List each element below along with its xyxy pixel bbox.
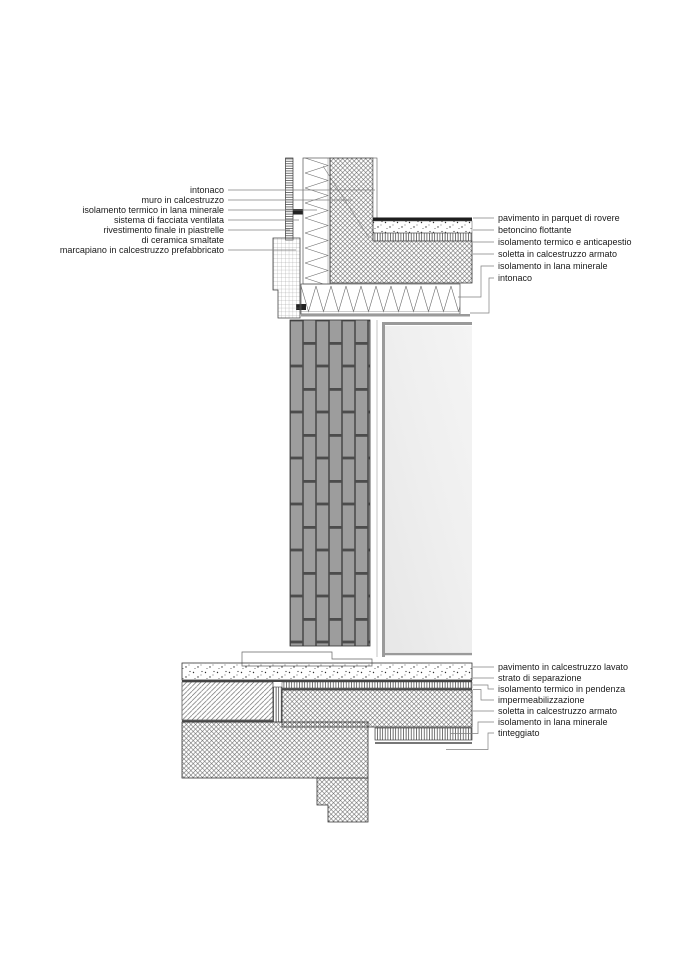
parquet-layer <box>373 218 472 222</box>
label-parquet: pavimento in parquet di rovere <box>498 213 620 223</box>
screed-layer <box>373 221 472 233</box>
plaster-strip-upper <box>373 158 377 218</box>
acoustic-insulation-layer <box>373 233 472 241</box>
waterproofing-upturn <box>273 687 282 722</box>
ceiling-plaster-line-upper <box>301 314 470 317</box>
ceiling-insulation-band-lower <box>375 728 472 740</box>
lower-slab-concrete <box>282 690 472 727</box>
label-intonaco-right: intonaco <box>498 273 532 283</box>
label-muro: muro in calcestruzzo <box>141 195 224 205</box>
facade-and-window <box>242 320 472 666</box>
label-intonaco-left: intonaco <box>190 185 224 195</box>
labels-right-bottom: pavimento in calcestruzzo lavato strato … <box>498 662 628 738</box>
brick-cladding-elevation <box>290 320 370 646</box>
washed-concrete-paving <box>182 663 472 680</box>
label-lana-minerale-bottom: isolamento in lana minerale <box>498 717 608 727</box>
label-impermeabilizzazione: impermeabilizzazione <box>498 695 585 705</box>
ceiling-insulation-band-upper <box>301 284 460 314</box>
label-facciata-ventilata: sistema di facciata ventilata <box>114 215 224 225</box>
concrete-beam-step <box>317 778 368 822</box>
leader-pendenza <box>473 685 494 689</box>
wall-insulation-band <box>303 158 330 284</box>
section-detail-drawing: intonaco muro in calcestruzzo isolamento… <box>0 0 700 980</box>
label-anticapestio: isolamento termico e anticapestio <box>498 237 632 247</box>
label-strato-separazione: strato di separazione <box>498 673 582 683</box>
label-rivestimento: rivestimento finale in piastrelle <box>103 225 224 235</box>
leader-intonaco-right <box>470 278 494 313</box>
tile-cladding-strip <box>286 158 294 240</box>
leader-impermeabilizzazione <box>473 690 494 701</box>
label-betoncino: betoncino flottante <box>498 225 572 235</box>
labels-right-top: pavimento in parquet di rovere betoncino… <box>498 213 632 283</box>
construction-detail-page: intonaco muro in calcestruzzo isolamento… <box>0 0 700 980</box>
window-glass <box>385 326 472 652</box>
label-tinteggiato: tinteggiato <box>498 728 540 738</box>
label-lana-minerale-top: isolamento in lana minerale <box>498 261 608 271</box>
label-soletta-top: soletta in calcestruzzo armato <box>498 249 617 259</box>
labels-left: intonaco muro in calcestruzzo isolamento… <box>60 185 224 255</box>
label-pavimento-lavato: pavimento in calcestruzzo lavato <box>498 662 628 672</box>
label-ceramica-smaltate: di ceramica smaltate <box>141 235 224 245</box>
label-isolamento-lana-left: isolamento termico in lana minerale <box>82 205 224 215</box>
tapered-insulation-thin-band <box>282 682 472 688</box>
tapered-insulation-wedge <box>182 682 273 720</box>
painted-ceiling-line <box>375 742 472 744</box>
label-pendenza: isolamento termico in pendenza <box>498 684 625 694</box>
lower-floor-layers <box>182 663 472 822</box>
lower-concrete-mass <box>182 722 368 778</box>
label-marcapiano: marcapiano in calcestruzzo prefabbricato <box>60 245 224 255</box>
label-soletta-bottom: soletta in calcestruzzo armato <box>498 706 617 716</box>
